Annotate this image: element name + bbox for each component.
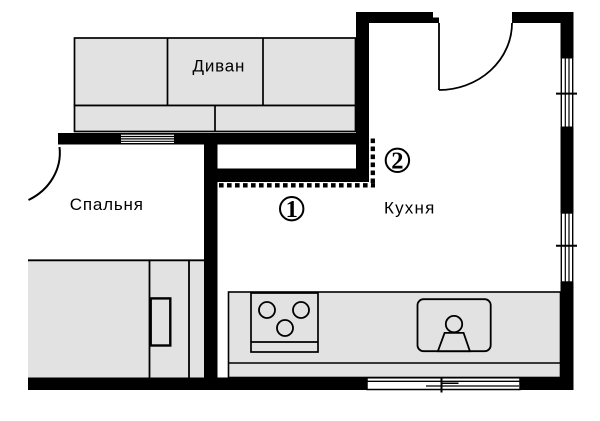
svg-text:Диван: Диван bbox=[193, 57, 246, 76]
svg-text:Спальня: Спальня bbox=[70, 195, 144, 214]
svg-text:Кухня: Кухня bbox=[384, 199, 436, 218]
svg-text:1: 1 bbox=[286, 196, 298, 223]
svg-text:2: 2 bbox=[391, 147, 403, 174]
